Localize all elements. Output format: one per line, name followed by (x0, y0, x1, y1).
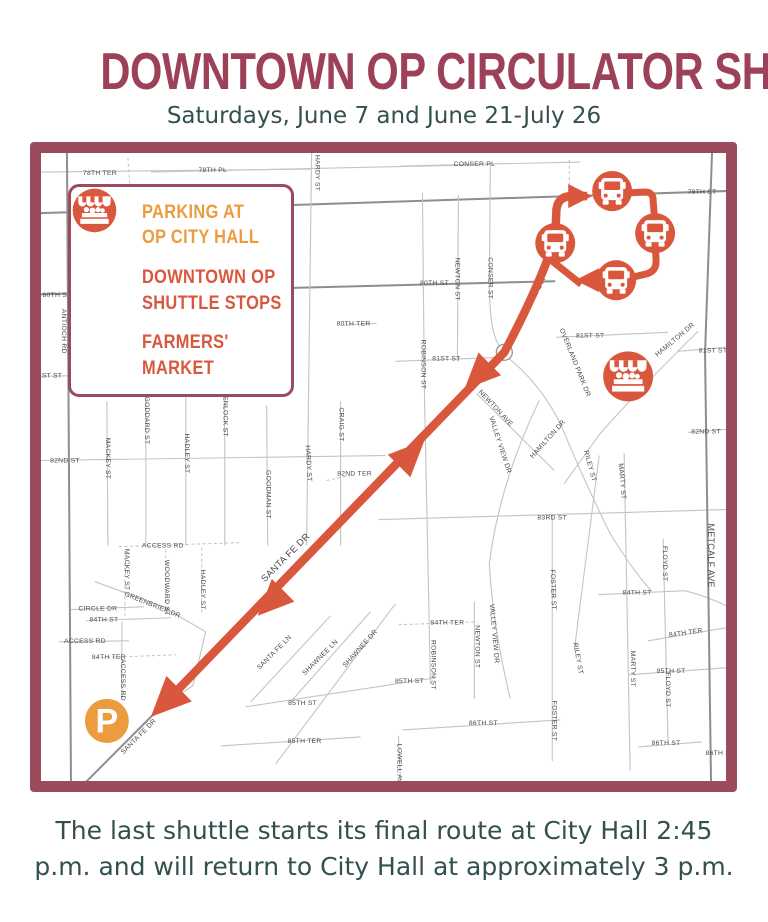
street-label: CONSER ST (486, 257, 493, 299)
street-label: FOSTER ST (549, 569, 557, 610)
street-label: NEWTON ST (473, 625, 480, 668)
street-label: MARTY ST (629, 651, 636, 687)
street-label: SHAWNEE DR (342, 628, 379, 669)
bus-icon (83, 267, 130, 314)
street-label: 81ST ST (699, 347, 726, 354)
street-label: CONSER PL (454, 161, 495, 168)
legend-label-shuttle-stops: DOWNTOWN OP SHUTTLE STOPS (142, 265, 282, 316)
street-label: ACCESS RD (142, 543, 184, 550)
market-icon (83, 332, 130, 379)
legend-item-farmers-market: FARMERS' MARKET (83, 330, 281, 381)
street-label: CRAIG ST (338, 407, 345, 441)
street-label: 81ST ST (576, 332, 604, 339)
svg-text:P: P (96, 702, 119, 740)
street-label: GREENBRIER DR (123, 591, 181, 620)
street-label: ACCESS RD (119, 659, 126, 701)
shuttle-stop-icon (635, 213, 675, 253)
city-hall-parking-icon: P (85, 699, 129, 743)
street-label: 81ST ST (41, 372, 62, 379)
street-label: GOODMAN ST (265, 470, 272, 519)
shuttle-stop-icon (535, 223, 575, 263)
legend-label-parking: PARKING AT OP CITY HALL (142, 200, 259, 251)
street-label: HARDY ST (304, 445, 313, 482)
street-label: GODDARD ST (143, 396, 150, 444)
street-label: HAMILTON DR (529, 419, 567, 460)
street-label: 83RD ST (537, 515, 567, 522)
street-label: RILEY ST (571, 642, 583, 675)
street-label: 84TH ST (89, 617, 118, 624)
street-label: ROBINSON ST (419, 340, 426, 390)
street-label: MARTY ST (617, 463, 627, 500)
street-label: 82ND ST (50, 457, 80, 464)
street-label: VALLEY VIEW DR (488, 604, 500, 664)
street-label: ACCESS RD (64, 638, 106, 645)
header: DOWNTOWN OP CIRCULATOR SHUTTLE (0, 42, 768, 102)
street-label: 78TH PL (198, 167, 227, 174)
street-label: 85TH TER (288, 738, 322, 745)
street-label: METCALF AVE (706, 524, 716, 588)
street-label: 86TH ST (706, 750, 726, 757)
street-label: 80TH ST (420, 280, 449, 287)
street-label: 85TH ST (395, 678, 424, 685)
legend-label-farmers-market: FARMERS' MARKET (142, 330, 229, 381)
street-label: NEWTON ST (453, 258, 460, 301)
farmers-market-icon (603, 351, 653, 401)
street-label: 81ST ST (432, 355, 460, 362)
street-label: 84TH TER (430, 620, 464, 627)
shuttle-flyer: DOWNTOWN OP CIRCULATOR SHUTTLE Saturdays… (0, 0, 768, 922)
street-label: LOWELL AVE (395, 744, 402, 781)
street-label: SHAWNEE LN (301, 639, 339, 677)
street-label: ENLOCK ST (222, 396, 229, 437)
street-label: MACKEY ST (104, 438, 111, 479)
footer-note: The last shuttle starts its final route … (34, 813, 734, 885)
street-label: 85TH ST (288, 700, 317, 707)
legend-item-shuttle-stops: DOWNTOWN OP SHUTTLE STOPS (83, 265, 281, 316)
map-frame: 78TH TER78TH PLCONSER PL79TH ST80TH ST80… (30, 142, 737, 792)
street-label: 79TH ST (688, 189, 717, 196)
street-label: FLOYD ST (661, 546, 668, 581)
subtitle: Saturdays, June 7 and June 21-July 26 (0, 103, 768, 129)
page-title: DOWNTOWN OP CIRCULATOR SHUTTLE (100, 42, 768, 102)
street-label: RILEY ST (582, 450, 597, 483)
street-label: 80TH TER (337, 320, 371, 327)
street-label: ROBINSON ST (429, 640, 436, 690)
route-arrow-icon (568, 184, 592, 208)
street-label: FLOYD ST (664, 672, 671, 707)
map-legend: P PARKING AT OP CITY HALL DOWNTOWN OP SH… (68, 184, 294, 397)
street-label: SANTA FE LN (256, 634, 293, 671)
street-label: HARDY ST (314, 155, 321, 191)
shuttle-stop-icon (596, 260, 636, 300)
street-label: HADLEY ST (183, 433, 190, 473)
street-label: FOSTER ST (550, 701, 557, 741)
street-label: 86TH ST (652, 740, 681, 747)
street-label: 84TH TER (669, 627, 704, 639)
street-label: ANTIOCH RD (60, 309, 67, 354)
street-label: 82ND TER (337, 471, 372, 478)
street-label: HADLEY ST (199, 570, 206, 610)
street-label: MACKEY ST (123, 549, 130, 590)
street-label: 78TH TER (83, 170, 117, 177)
street-label: 84TH ST (623, 590, 652, 597)
street-label: 86TH ST (469, 720, 498, 727)
street-label: 82ND ST (691, 428, 721, 435)
street-label: CIRCLE DR (79, 606, 118, 613)
shuttle-stop-icon (592, 171, 632, 211)
route-arrow-icon (575, 268, 599, 292)
